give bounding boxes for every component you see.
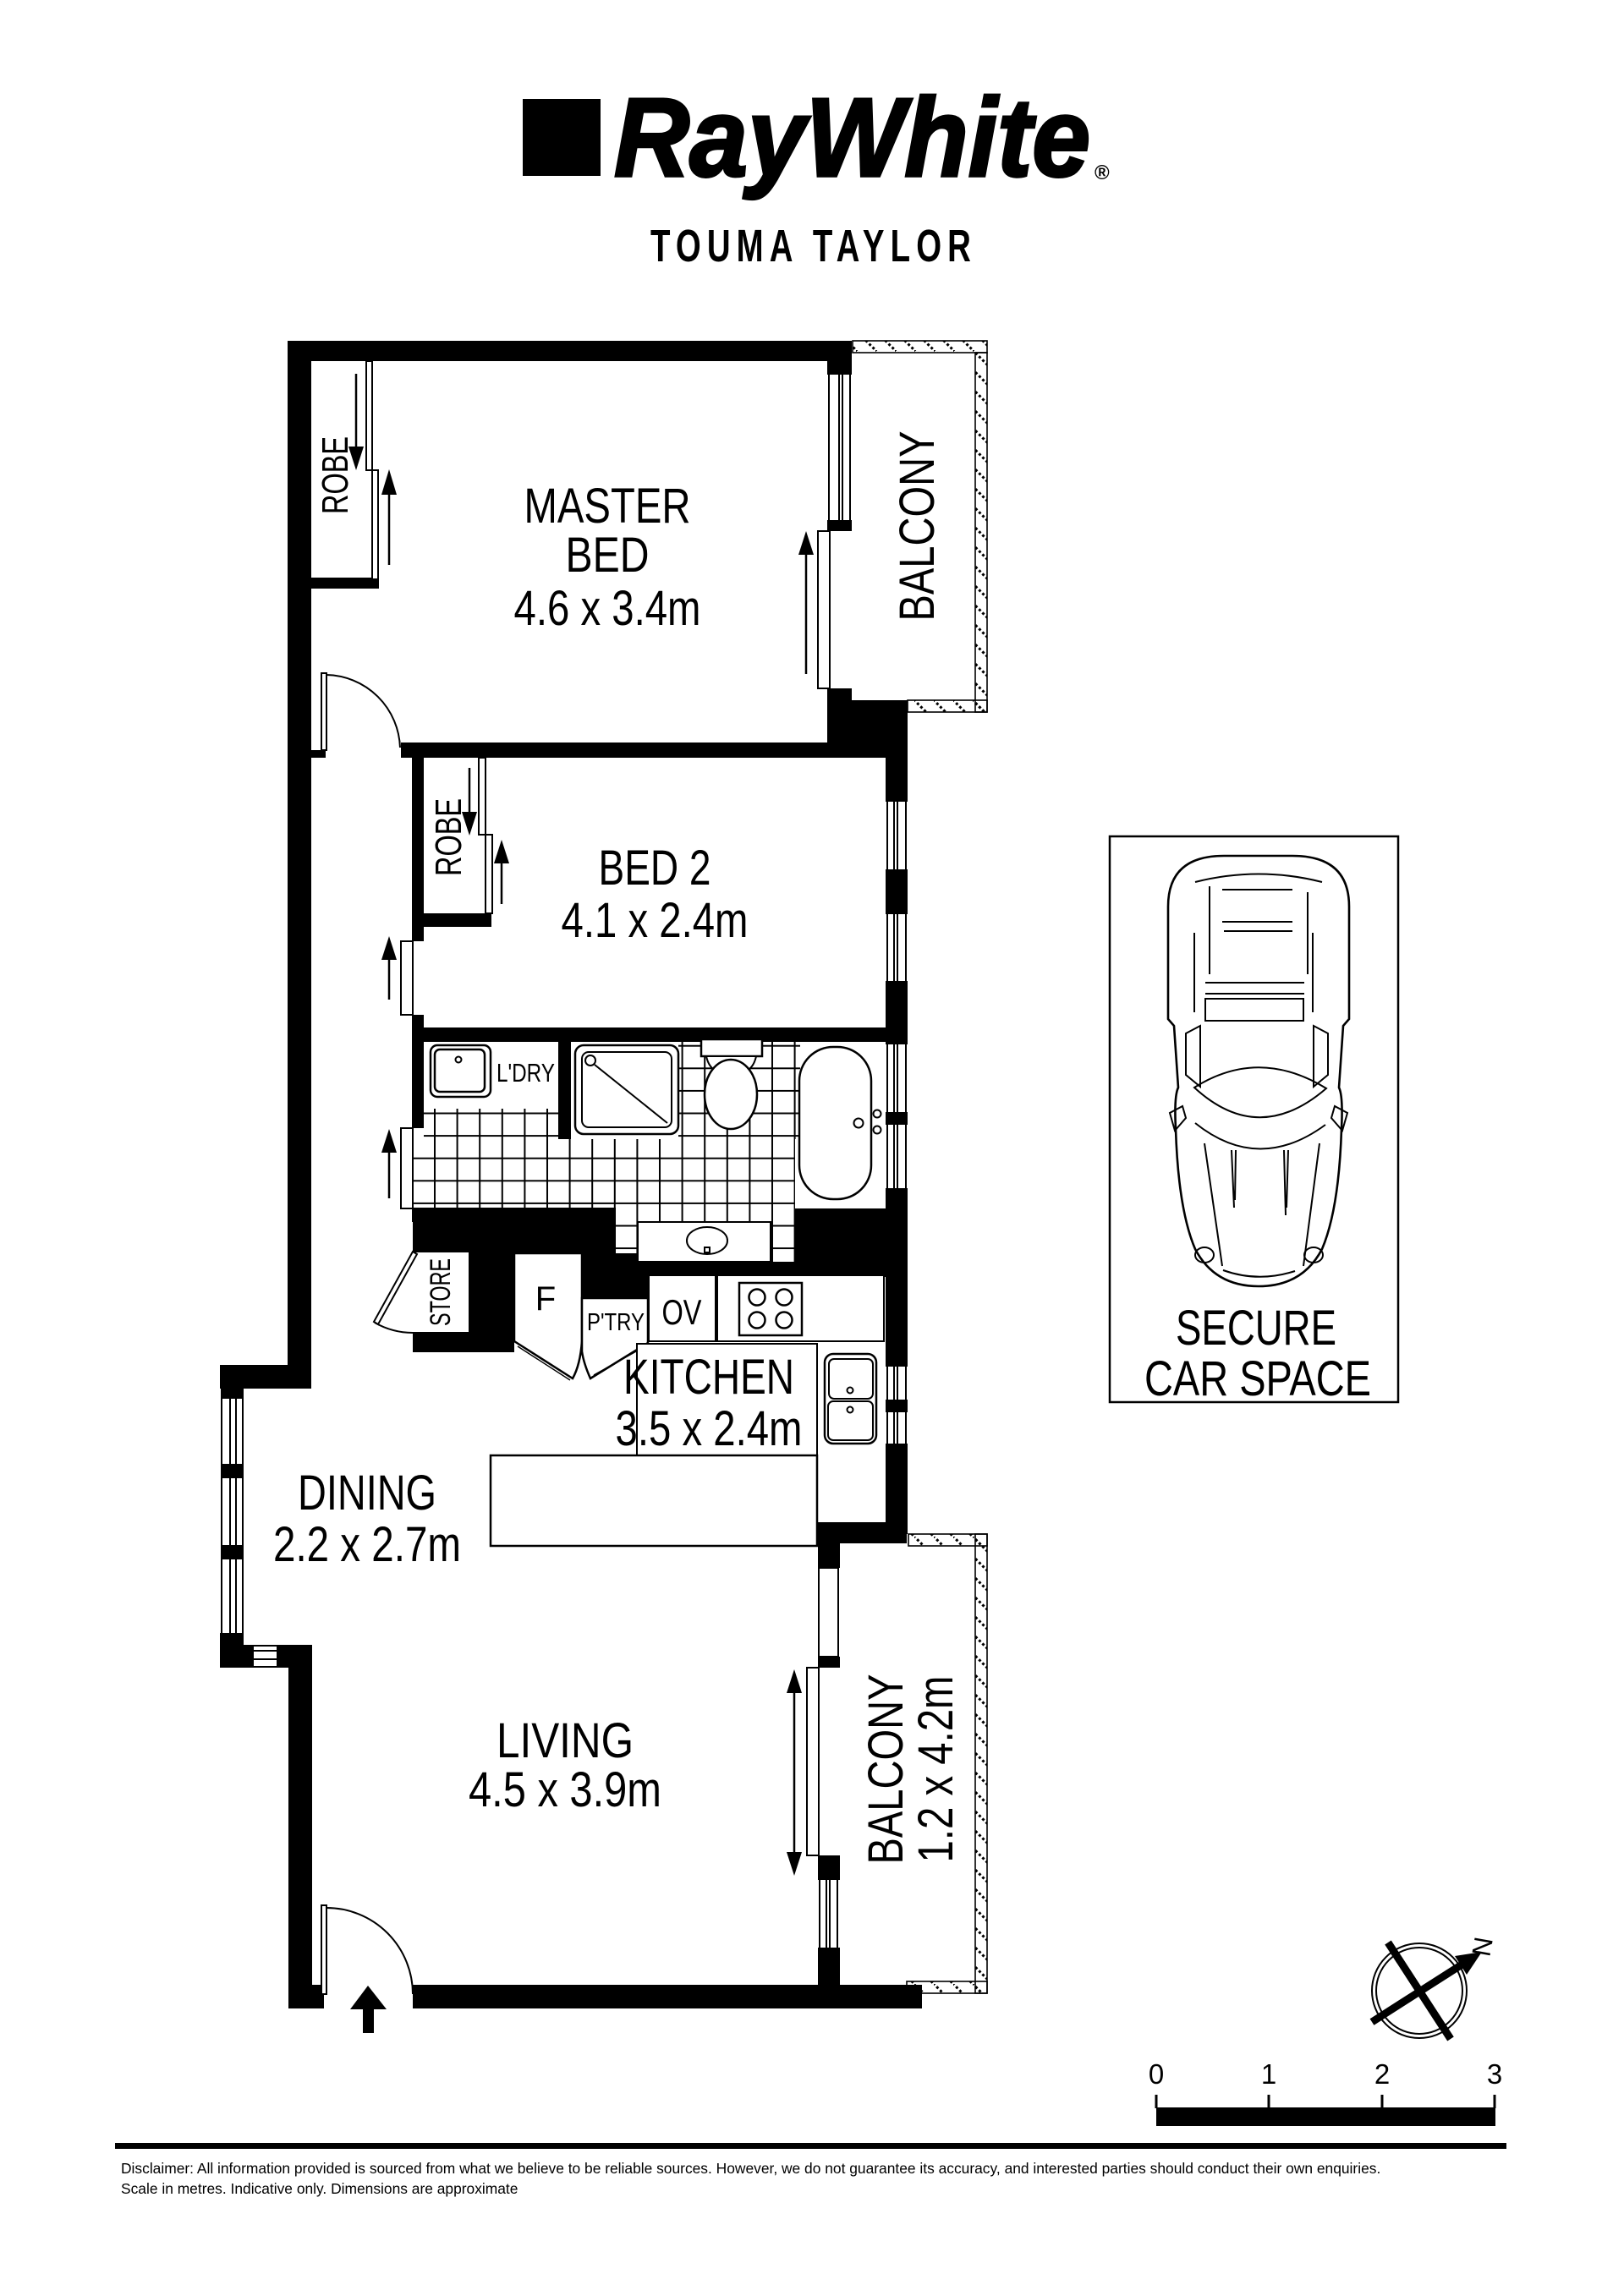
svg-text:1: 1	[1261, 2058, 1276, 2090]
svg-text:F: F	[535, 1280, 556, 1318]
svg-text:4.6 x 3.4m: 4.6 x 3.4m	[514, 581, 701, 636]
svg-text:2: 2	[1374, 2058, 1390, 2090]
svg-text:STORE: STORE	[425, 1258, 457, 1326]
svg-text:4.5 x 3.9m: 4.5 x 3.9m	[469, 1762, 661, 1817]
svg-text:3.5 x 2.4m: 3.5 x 2.4m	[616, 1401, 803, 1456]
svg-text:LIVING: LIVING	[497, 1713, 634, 1768]
svg-text:OV: OV	[662, 1292, 702, 1332]
svg-text:KITCHEN: KITCHEN	[623, 1350, 794, 1405]
svg-text:4.1 x 2.4m: 4.1 x 2.4m	[562, 893, 749, 948]
svg-text:SECURE: SECURE	[1176, 1301, 1336, 1356]
svg-text:®: ®	[1095, 162, 1110, 184]
svg-text:P'TRY: P'TRY	[587, 1309, 645, 1336]
svg-text:RayWhite: RayWhite	[614, 75, 1090, 200]
svg-text:DINING: DINING	[298, 1466, 436, 1521]
svg-text:0: 0	[1149, 2058, 1164, 2090]
svg-text:BED: BED	[566, 528, 650, 583]
svg-text:Disclaimer: All information pr: Disclaimer: All information provided is …	[121, 2160, 1380, 2177]
svg-text:BALCONY: BALCONY	[859, 1674, 913, 1865]
svg-text:3: 3	[1487, 2058, 1502, 2090]
svg-text:MASTER: MASTER	[524, 479, 691, 534]
svg-text:BED 2: BED 2	[599, 841, 711, 896]
svg-text:Scale in metres. Indicative on: Scale in metres. Indicative only. Dimens…	[121, 2180, 518, 2197]
svg-text:CAR SPACE: CAR SPACE	[1144, 1351, 1371, 1406]
svg-text:BALCONY: BALCONY	[890, 431, 945, 622]
svg-text:TOUMA TAYLOR: TOUMA TAYLOR	[650, 221, 977, 271]
svg-text:1.2 x 4.2m: 1.2 x 4.2m	[908, 1676, 963, 1863]
svg-text:ROBE: ROBE	[428, 798, 469, 876]
svg-text:L'DRY: L'DRY	[497, 1058, 555, 1088]
svg-text:2.2 x 2.7m: 2.2 x 2.7m	[273, 1517, 461, 1572]
